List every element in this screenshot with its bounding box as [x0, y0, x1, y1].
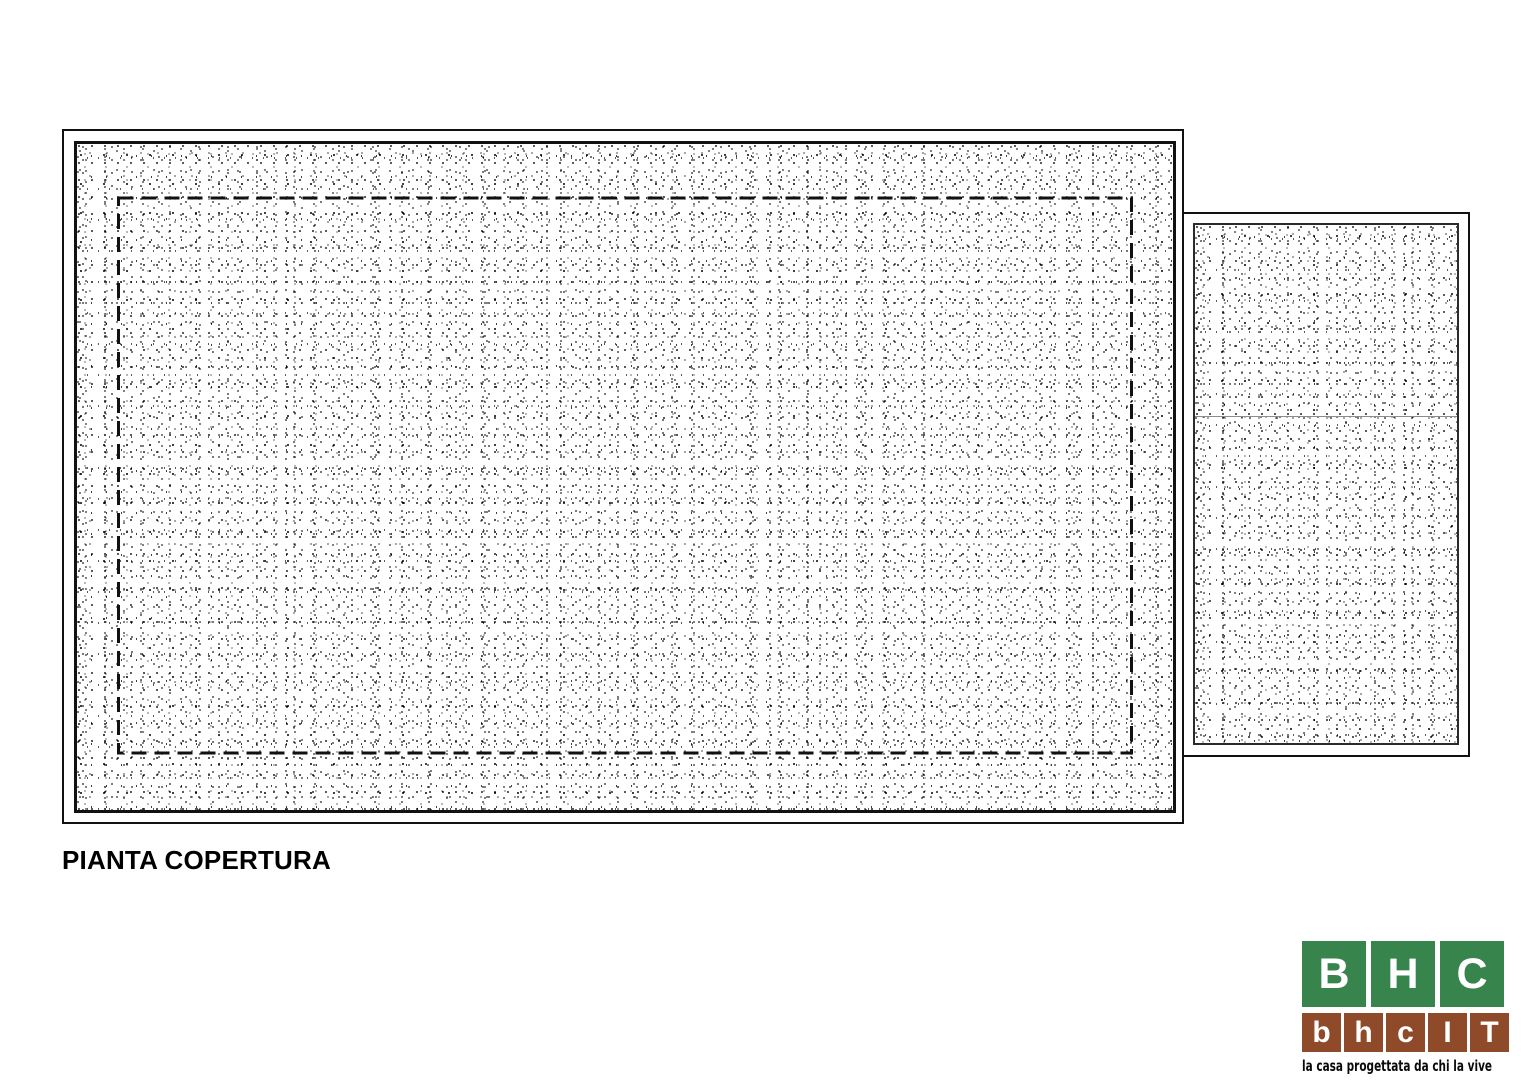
- logo-tile-green-b: B: [1302, 941, 1366, 1007]
- logo-tile-green-c: C: [1440, 941, 1504, 1007]
- logo-tile-brown-i: I: [1428, 1013, 1467, 1052]
- main-roof-hatch-area: [74, 141, 1176, 813]
- annex-roof-hatch-area: [1193, 223, 1459, 745]
- logo-tile-green-h: H: [1371, 941, 1435, 1007]
- logo-bottom-row: b h c I T: [1302, 1013, 1512, 1052]
- bhc-logo: B H C b h c I T la casa progettata da ch…: [1302, 941, 1512, 1075]
- annex-roof-ridge-line: [1195, 416, 1457, 417]
- logo-top-row: B H C: [1302, 941, 1512, 1007]
- logo-tagline: la casa progettata da chi la vive: [1302, 1057, 1449, 1075]
- logo-tile-brown-h: h: [1344, 1013, 1383, 1052]
- main-roof-outline: [62, 129, 1184, 824]
- drawing-sheet: PIANTA COPERTURA B H C b h c I T la casa…: [0, 0, 1528, 1080]
- logo-tile-brown-c: c: [1386, 1013, 1425, 1052]
- logo-tile-brown-t: T: [1470, 1013, 1509, 1052]
- annex-roof-outline: [1181, 212, 1470, 757]
- logo-tile-brown-b: b: [1302, 1013, 1341, 1052]
- wall-perimeter-dashed-outline: [77, 144, 1173, 810]
- drawing-title: PIANTA COPERTURA: [62, 845, 331, 876]
